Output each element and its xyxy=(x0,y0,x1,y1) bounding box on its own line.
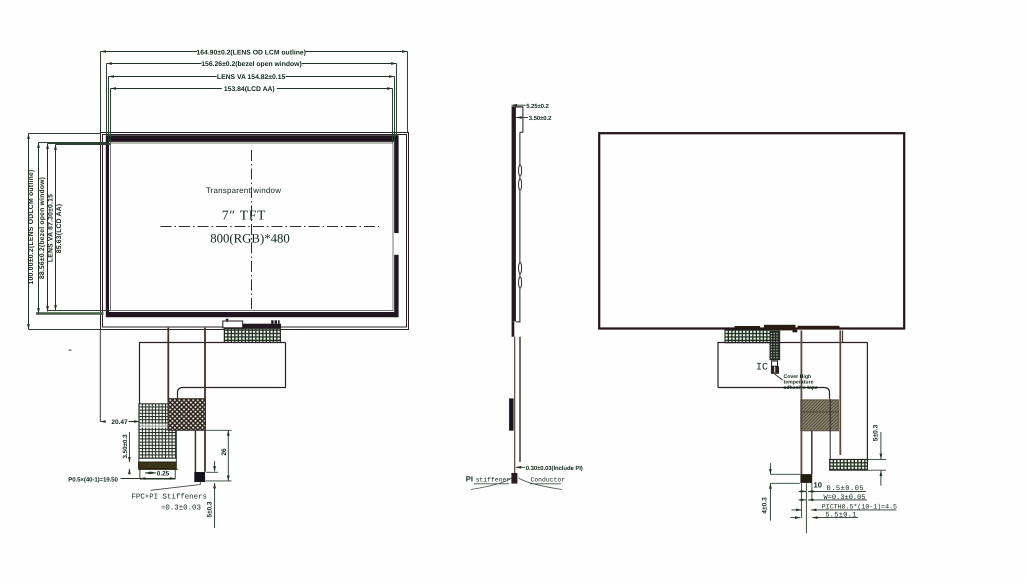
svg-text:85.63(LCD AA): 85.63(LCD AA) xyxy=(56,204,63,254)
svg-text:5.25±0.2: 5.25±0.2 xyxy=(526,103,549,110)
svg-text:IC: IC xyxy=(756,363,768,374)
svg-text:W=0.3±0.05: W=0.3±0.05 xyxy=(824,494,866,502)
svg-text:5±0.3: 5±0.3 xyxy=(206,501,213,517)
svg-text:stiffener: stiffener xyxy=(476,477,511,484)
svg-text:4±0.3: 4±0.3 xyxy=(762,497,769,514)
svg-text:LENS VA 154.82±0.15: LENS VA 154.82±0.15 xyxy=(217,74,286,81)
svg-text:26: 26 xyxy=(221,448,228,456)
svg-text:5±0.3: 5±0.3 xyxy=(873,424,880,441)
svg-text:100.00±0.2(LENS ODLCM outline): 100.00±0.2(LENS ODLCM outline) xyxy=(28,169,35,284)
svg-text:153.84(LCD AA): 153.84(LCD AA) xyxy=(224,86,275,93)
svg-text:0.5±0.05: 0.5±0.05 xyxy=(827,485,865,493)
svg-text:164.90±0.2(LENS OD LCM outline: 164.90±0.2(LENS OD LCM outline) xyxy=(196,49,305,56)
svg-text:0.25: 0.25 xyxy=(157,470,170,477)
svg-text:0.30±0.03(Include PI): 0.30±0.03(Include PI) xyxy=(526,465,583,472)
svg-text:800(RGB)*480: 800(RGB)*480 xyxy=(210,232,290,246)
svg-text:LENS VA 87.30±0.15: LENS VA 87.30±0.15 xyxy=(48,194,55,262)
svg-text:=0.3±0.03: =0.3±0.03 xyxy=(161,504,201,512)
svg-text:Conductor: Conductor xyxy=(531,477,566,484)
svg-text:FPC+PI Stiffeners: FPC+PI Stiffeners xyxy=(132,492,207,501)
svg-text:3.50±0.2: 3.50±0.2 xyxy=(529,115,552,122)
svg-text:88.56±0.2(bezel open window): 88.56±0.2(bezel open window) xyxy=(39,177,46,279)
svg-text:20.47: 20.47 xyxy=(111,419,128,426)
svg-text:3.50±0.3: 3.50±0.3 xyxy=(122,434,129,459)
svg-text:Transparent window: Transparent window xyxy=(206,186,281,195)
svg-text:156.26±0.2(bezel open window): 156.26±0.2(bezel open window) xyxy=(201,61,301,68)
svg-text:adhesive tape: adhesive tape xyxy=(784,385,818,391)
svg-text:PI: PI xyxy=(466,474,473,483)
svg-text:7″ TFT: 7″ TFT xyxy=(222,208,266,223)
svg-text:P0.5×(40-1)=19.50: P0.5×(40-1)=19.50 xyxy=(68,476,118,483)
svg-text:PICTH0.5*(10-1)=4.5: PICTH0.5*(10-1)=4.5 xyxy=(822,504,897,511)
svg-text:5.5±0.1: 5.5±0.1 xyxy=(825,511,857,519)
svg-text:10: 10 xyxy=(814,480,822,489)
